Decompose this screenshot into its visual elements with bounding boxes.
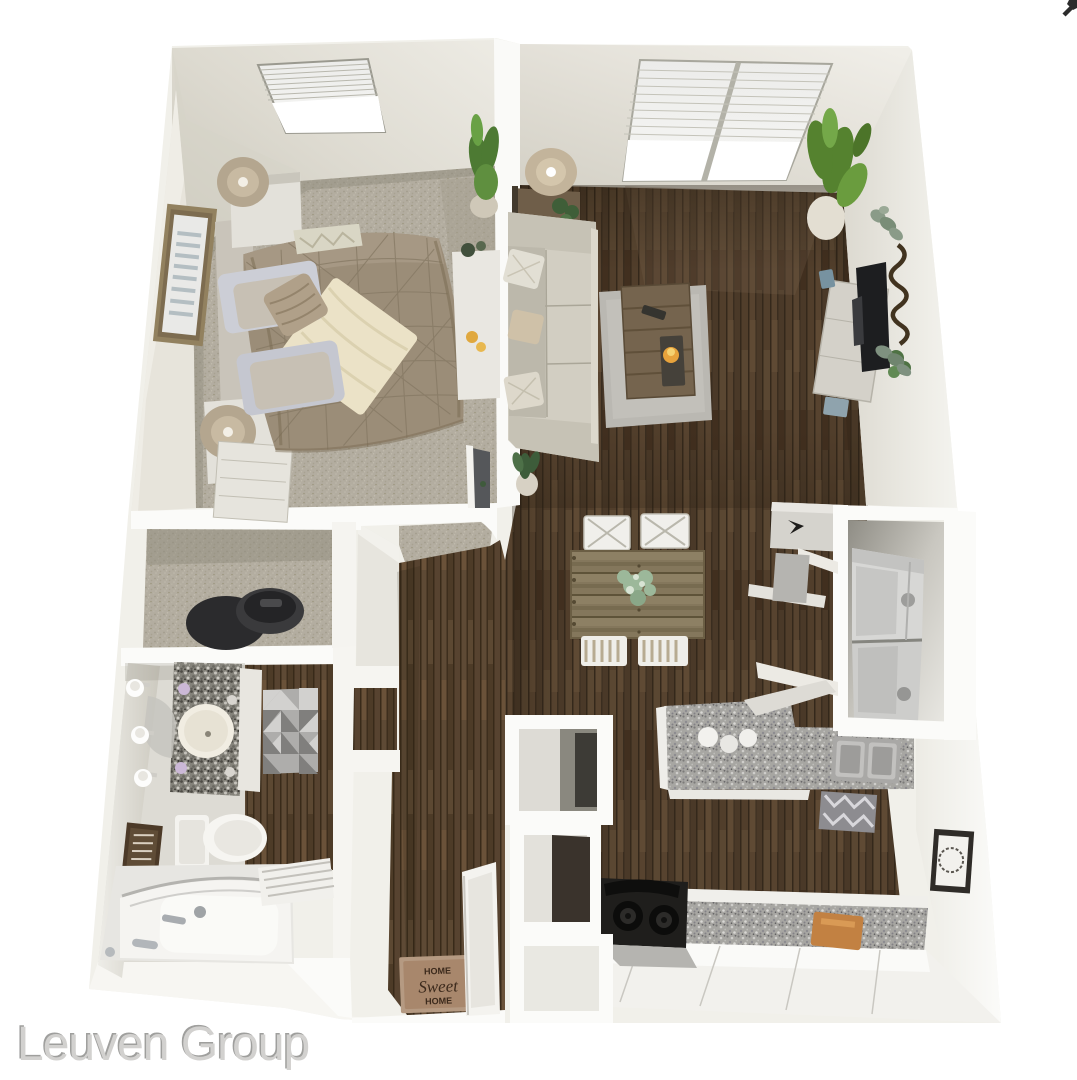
svg-text:Sweet: Sweet xyxy=(418,976,460,996)
svg-text:HOME: HOME xyxy=(424,966,451,977)
svg-text:HOME: HOME xyxy=(425,996,452,1007)
